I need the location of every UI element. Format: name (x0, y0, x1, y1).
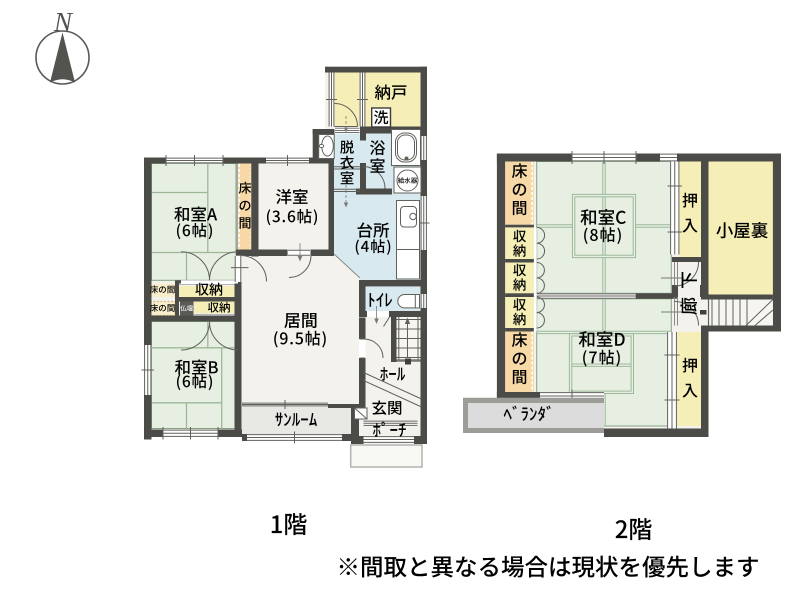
svg-text:N: N (53, 7, 74, 37)
